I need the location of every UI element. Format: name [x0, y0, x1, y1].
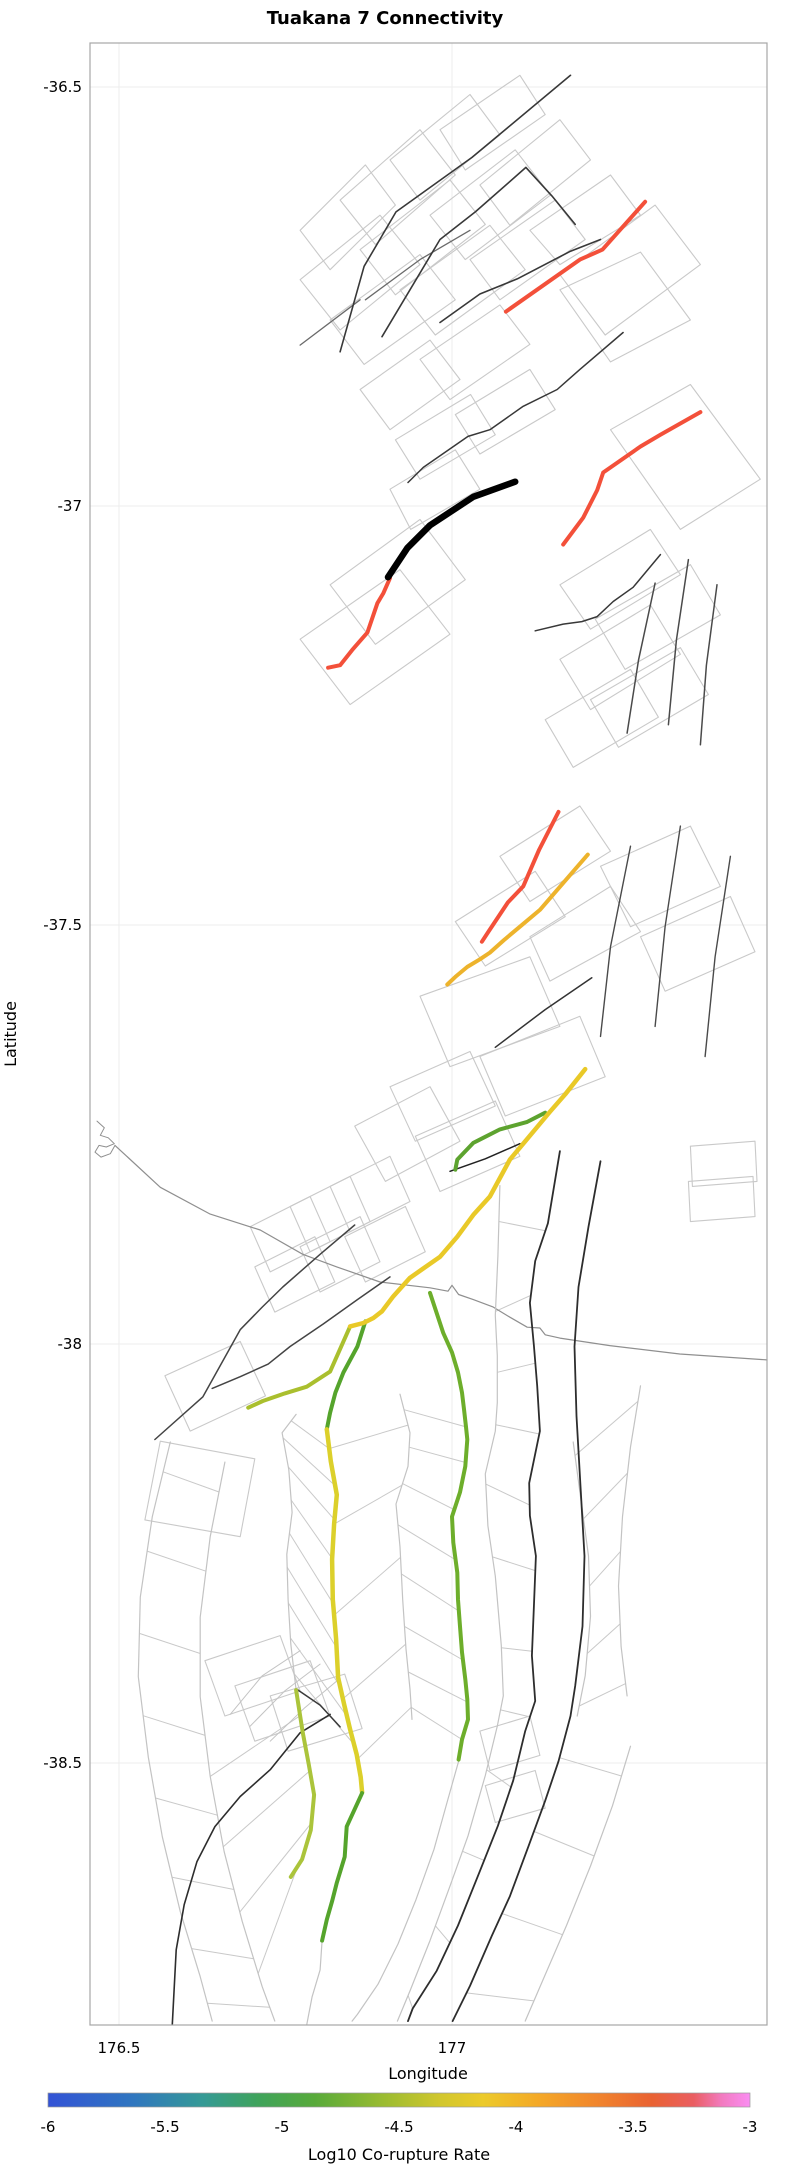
fault-section-polygon [420, 305, 530, 400]
fault-section-rungs [139, 1222, 638, 2009]
plot-border [90, 43, 767, 2025]
fault-section-rung [288, 1467, 334, 1520]
fault-section-rung [499, 1222, 546, 1231]
fault-section-polygon [560, 205, 701, 335]
fault-section-rung [575, 1401, 638, 1455]
fault-section-polygon [340, 130, 455, 245]
fault-section-polygon [390, 1052, 495, 1142]
fault-section-polygon [330, 519, 465, 644]
fault-section-polygon [530, 175, 641, 265]
connectivity-map-figure: 176.5177-36.5-37-37.5-38-38.5 -6-5.5-5-4… [0, 0, 800, 2174]
fault-section-polygon [145, 1441, 255, 1537]
fault-section-rung [343, 1644, 406, 1699]
y-tick-label: -36.5 [43, 78, 82, 96]
strand-l5 [397, 1186, 503, 2022]
fault-section-rung [590, 1551, 621, 1586]
colorbar-tick-label: -4 [509, 2118, 524, 2136]
fault-section-rung [172, 1877, 234, 1889]
strand-l8 [525, 1746, 630, 2021]
fault-section-polygon [560, 529, 681, 629]
trace-t7 [668, 560, 688, 725]
fault-section-rung [408, 1995, 413, 2008]
fault-section-polygon [560, 605, 681, 710]
y-tick-label: -38.5 [43, 1754, 82, 1772]
fault-section-polygon [255, 1237, 335, 1312]
coast-headland [95, 1121, 115, 1157]
colorbar-bar [48, 2093, 750, 2107]
trace-t4 [408, 333, 623, 483]
colorbar-tick-label: -3.5 [618, 2118, 647, 2136]
fault-section-polygon [480, 120, 591, 226]
fault-section-rung [495, 1295, 531, 1311]
fault-section-rung [501, 1710, 531, 1717]
fault-section-rung [486, 1484, 530, 1505]
fault-section-polygon [690, 1141, 757, 1186]
strand-l2 [200, 1462, 275, 2021]
fault-section-rung [579, 1684, 625, 1706]
axis-tick-labels: 176.5177-36.5-37-37.5-38-38.5 [43, 78, 466, 2057]
fault-section-rung [405, 1626, 463, 1660]
fault-section-rung [334, 1485, 402, 1524]
fan-2 [250, 1664, 320, 1726]
fault-section-polygon [601, 826, 721, 927]
green-strand-long [430, 1293, 468, 1760]
fault-section-rung [287, 1567, 336, 1647]
y-tick-label: -37 [58, 497, 83, 515]
fault-section-polygon [360, 340, 460, 430]
fault-section-polygon [390, 450, 480, 530]
trace-t8 [700, 585, 717, 745]
fault-section-polygon [480, 1016, 605, 1116]
trace-t9 [155, 1225, 355, 1440]
fault-section-rung [409, 1447, 465, 1462]
fault-section-polygon [205, 1636, 300, 1716]
fault-section-rung [403, 1484, 455, 1510]
yellow-diagonal [350, 1069, 585, 1326]
fault-section-rung [143, 1716, 205, 1736]
green-upper [455, 1113, 545, 1170]
green-bottom [322, 1793, 362, 1941]
strand-l9 [352, 1759, 459, 2021]
fault-section-rung [398, 1525, 456, 1560]
fault-section-polygons [145, 75, 760, 1822]
colorbar-label: Log10 Co-rupture Rate [308, 2145, 490, 2164]
trace-t3 [440, 240, 601, 323]
colorbar-tick-label: -5.5 [150, 2118, 179, 2136]
dark-strand-1 [408, 1151, 560, 2021]
trace-t16 [365, 230, 470, 299]
fault-section-polygon [300, 570, 450, 705]
fault-section-rung [163, 1472, 219, 1492]
colorbar-tick-label: -6 [41, 2118, 56, 2136]
fault-section-rung [240, 1823, 312, 1912]
fault-section-rung [467, 1993, 534, 2001]
colorbar-tick-label: -3 [743, 2118, 758, 2136]
strand-l7 [619, 1386, 641, 1696]
strand-l10 [307, 1941, 322, 2025]
colorbar-tick-label: -4.5 [384, 2118, 413, 2136]
fault-section-polygon [395, 395, 495, 480]
x-axis-label: Longitude [388, 2064, 468, 2083]
fault-section-polygon [455, 871, 565, 966]
fault-section-rung [502, 1914, 563, 1935]
fault-section-rung [587, 1624, 620, 1654]
fault-section-rung [584, 1473, 628, 1519]
colorbar: -6-5.5-5-4.5-4-3.5-3 [41, 2093, 758, 2136]
fault-section-rung [411, 1707, 462, 1739]
dark-strand-2 [453, 1161, 601, 2021]
fault-section-polygon [688, 1176, 755, 1221]
fault-section-rung [435, 1926, 449, 1943]
trace-t2 [382, 167, 575, 336]
fault-section-rung [334, 1557, 401, 1615]
fault-section-rung [207, 2003, 269, 2007]
gridlines [90, 43, 767, 2025]
fault-section-rung [404, 1410, 466, 1427]
fault-section-rung [291, 1421, 329, 1449]
gold-mid [447, 855, 588, 985]
fault-section-rung [156, 1798, 218, 1815]
fault-section-rung [493, 1557, 536, 1571]
fault-section-rung [497, 1363, 535, 1372]
trace-t13 [705, 856, 730, 1056]
fault-section-polygon [611, 385, 761, 530]
fault-section-polygon [485, 1771, 545, 1823]
fault-section-rung [147, 1551, 206, 1571]
red-mid [482, 812, 559, 942]
x-tick-label: 177 [438, 2039, 467, 2057]
fault-section-rung [463, 1851, 485, 1860]
trace-t17 [300, 300, 360, 345]
trace-t12 [655, 826, 680, 1026]
strand-l4 [396, 1394, 412, 1719]
fault-section-polygon [420, 957, 560, 1067]
red-upper-2 [563, 412, 700, 544]
strand-l3 [282, 1414, 296, 1690]
fault-section-rung [408, 1672, 467, 1702]
y-tick-label: -37.5 [43, 916, 82, 934]
fault-section-polygon [455, 369, 555, 454]
plot-title: Tuakana 7 Connectivity [267, 8, 504, 29]
fault-section-rung [223, 1771, 310, 1847]
colorbar-tick-label: -5 [275, 2118, 290, 2136]
fault-section-polygon [591, 648, 709, 748]
fault-section-polygon [560, 252, 691, 362]
fault-section-rung [329, 1425, 408, 1449]
fault-section-rung [291, 1500, 332, 1558]
fault-section-rung [192, 1949, 254, 1959]
fault-section-rung [496, 1425, 540, 1434]
fault-section-rung [501, 1648, 532, 1652]
fault-section-rung [560, 1758, 622, 1776]
fault-section-polygon [440, 75, 545, 170]
fault-section-rung [358, 1707, 412, 1759]
plot-frame [90, 43, 767, 2025]
fan-3 [270, 1678, 340, 1741]
y-tick-label: -38 [58, 1335, 83, 1353]
fault-section-rung [401, 1574, 458, 1611]
fault-section-rung [290, 1533, 334, 1603]
x-tick-label: 176.5 [97, 2039, 140, 2057]
fault-section-rung [139, 1633, 200, 1653]
fault-section-polygon [641, 897, 756, 992]
trace-t6 [627, 583, 655, 733]
strand-l1 [138, 1442, 212, 2021]
fault-map-plot: 176.5177-36.5-37-37.5-38-38.5 -6-5.5-5-4… [0, 0, 800, 2174]
y-axis-label: Latitude [1, 1001, 20, 1067]
fan-1 [230, 1651, 300, 1715]
fault-section-polygon [355, 1087, 460, 1182]
fault-section-rung [534, 1831, 594, 1856]
